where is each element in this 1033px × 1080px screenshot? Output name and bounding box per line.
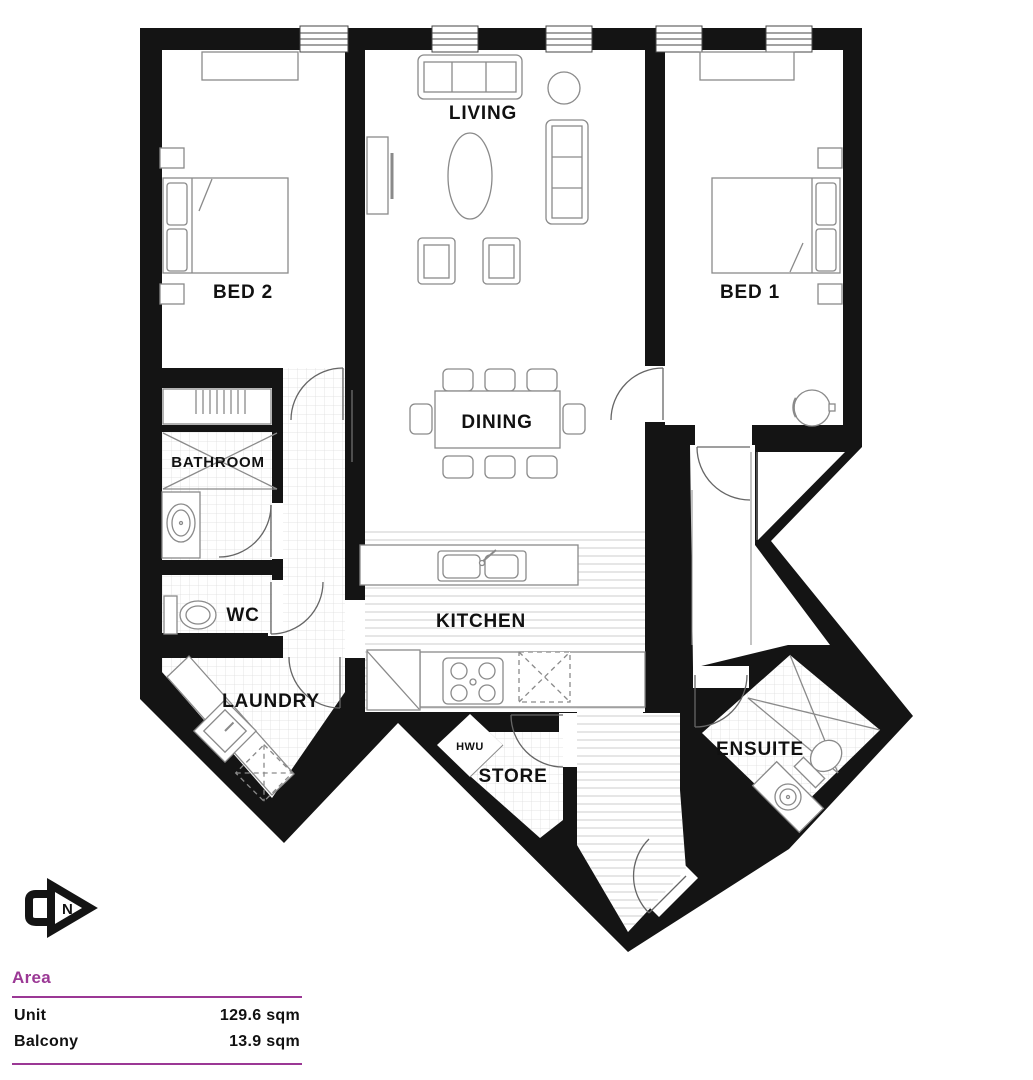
bathroom-label: BATHROOM [171, 454, 265, 471]
kitchen-label: KITCHEN [436, 611, 526, 632]
window-icon [432, 26, 478, 52]
kitchen-island [360, 545, 578, 585]
laundry-label: LAUNDRY [222, 691, 320, 712]
side-table-icon [548, 72, 580, 104]
wc-label: WC [226, 605, 259, 626]
area-rows: Unit 129.6 sqm Balcony 13.9 sqm [12, 996, 302, 1065]
window-icon [300, 26, 348, 52]
hall-opening [343, 600, 367, 658]
armchair-icon [418, 238, 455, 284]
area-row-value: 129.6 sqm [220, 1003, 300, 1029]
bed1-bed-icon [712, 178, 840, 273]
area-row-unit: Unit 129.6 sqm [14, 1003, 300, 1029]
area-heading: Area [12, 968, 302, 988]
north-letter: N [62, 901, 73, 918]
area-row-label: Balcony [14, 1029, 78, 1055]
sofa-icon [418, 55, 522, 99]
bed2-bed-icon [163, 178, 288, 273]
bed2-wardrobe [202, 52, 298, 80]
bed2-side-table [160, 284, 184, 304]
bed2-side-table [160, 148, 184, 168]
robe-door-opening [695, 423, 752, 447]
bed1-wardrobe [700, 52, 794, 80]
bed1-side-table [818, 284, 842, 304]
living-label: LIVING [449, 103, 517, 124]
area-table: Area Unit 129.6 sqm Balcony 13.9 sqm [12, 968, 302, 1065]
bed1-door-opening [641, 366, 669, 422]
bed1-label: BED 1 [720, 282, 780, 303]
linen-shelves [163, 389, 271, 424]
bathroom-vanity [162, 492, 200, 558]
bed2-label: BED 2 [213, 282, 273, 303]
armchair-icon [483, 238, 520, 284]
north-arrow-icon: N [29, 885, 90, 931]
floorplan-canvas: LIVING BED 2 BED 1 DINING BATHROOM WC KI… [0, 0, 1033, 1080]
ensuite-label: ENSUITE [716, 739, 804, 760]
area-row-balcony: Balcony 13.9 sqm [14, 1029, 300, 1055]
hwu-label: HWU [456, 741, 484, 753]
floorplan-page: LIVING BED 2 BED 1 DINING BATHROOM WC KI… [0, 0, 1033, 1080]
window-icon [546, 26, 592, 52]
fridge-space [519, 652, 570, 702]
ensuite-door-opening [693, 666, 749, 688]
window-icon [656, 26, 702, 52]
dining-label: DINING [461, 412, 532, 433]
window-icon [766, 26, 812, 52]
area-row-value: 13.9 sqm [229, 1029, 300, 1055]
chaise-icon [546, 120, 588, 224]
area-row-label: Unit [14, 1003, 46, 1029]
bed1-side-table [818, 148, 842, 168]
corner-cabinet [367, 650, 420, 710]
store-label: STORE [478, 766, 547, 787]
coffee-table-icon [448, 133, 492, 219]
tv-unit-icon [367, 137, 392, 214]
